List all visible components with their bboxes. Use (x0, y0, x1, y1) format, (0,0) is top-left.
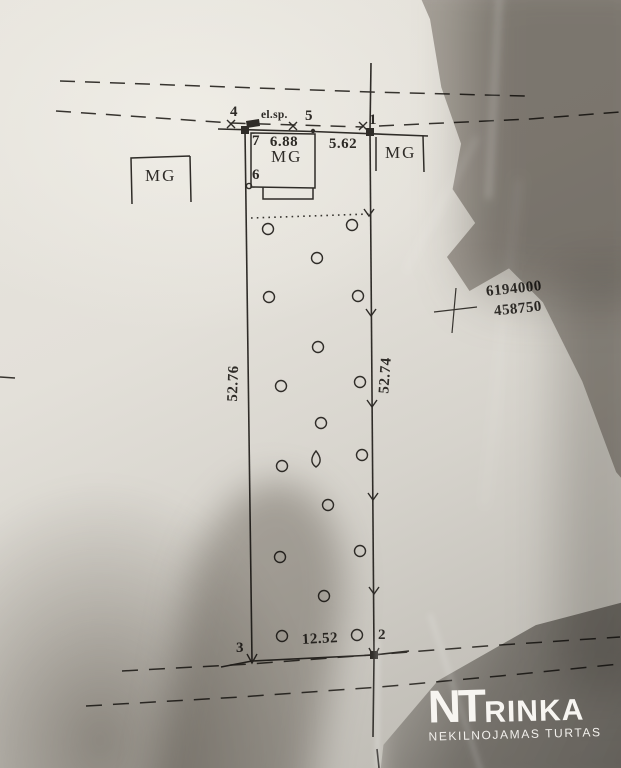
building-label-mg-left: MG (145, 166, 176, 186)
dimension-top-right: 5.62 (320, 136, 366, 153)
dotted-line (251, 214, 369, 218)
dimension-side-left: 52.76 (224, 353, 243, 414)
survey-point-markers (227, 119, 379, 663)
point-label-3: 3 (236, 640, 244, 657)
watermark-logo: NT RINKA NEKILNOJAMAS TURTAS (427, 682, 621, 743)
deciduous-tree-icon (312, 451, 320, 467)
brand-suffix: RINKA (484, 697, 585, 725)
brand-text: NT RINKA (427, 682, 621, 726)
point-label-4: 4 (230, 104, 238, 121)
point-label-5: 5 (305, 108, 313, 125)
point-label-7: 7 (252, 133, 260, 150)
nt-monogram: NT (427, 686, 483, 727)
edge-dash (0, 377, 15, 378)
road-dashed-lines-top (56, 81, 620, 127)
building-label-mg-right: MG (385, 143, 416, 163)
point-label-2: 2 (378, 627, 386, 644)
dimension-bottom: 12.52 (294, 630, 347, 650)
tree-circle-symbols (263, 220, 368, 642)
point-label-1: 1 (369, 112, 377, 129)
cadastral-plan-photo: 4 el.sp. 5 1 7 6.88 5.62 MG MG MG 6 52.7… (0, 0, 621, 768)
building-label-mg-house: MG (271, 147, 302, 167)
point-label-6: 6 (252, 167, 260, 184)
el-sp-label: el.sp. (261, 109, 288, 121)
parcel-boundary-lines (218, 63, 428, 768)
